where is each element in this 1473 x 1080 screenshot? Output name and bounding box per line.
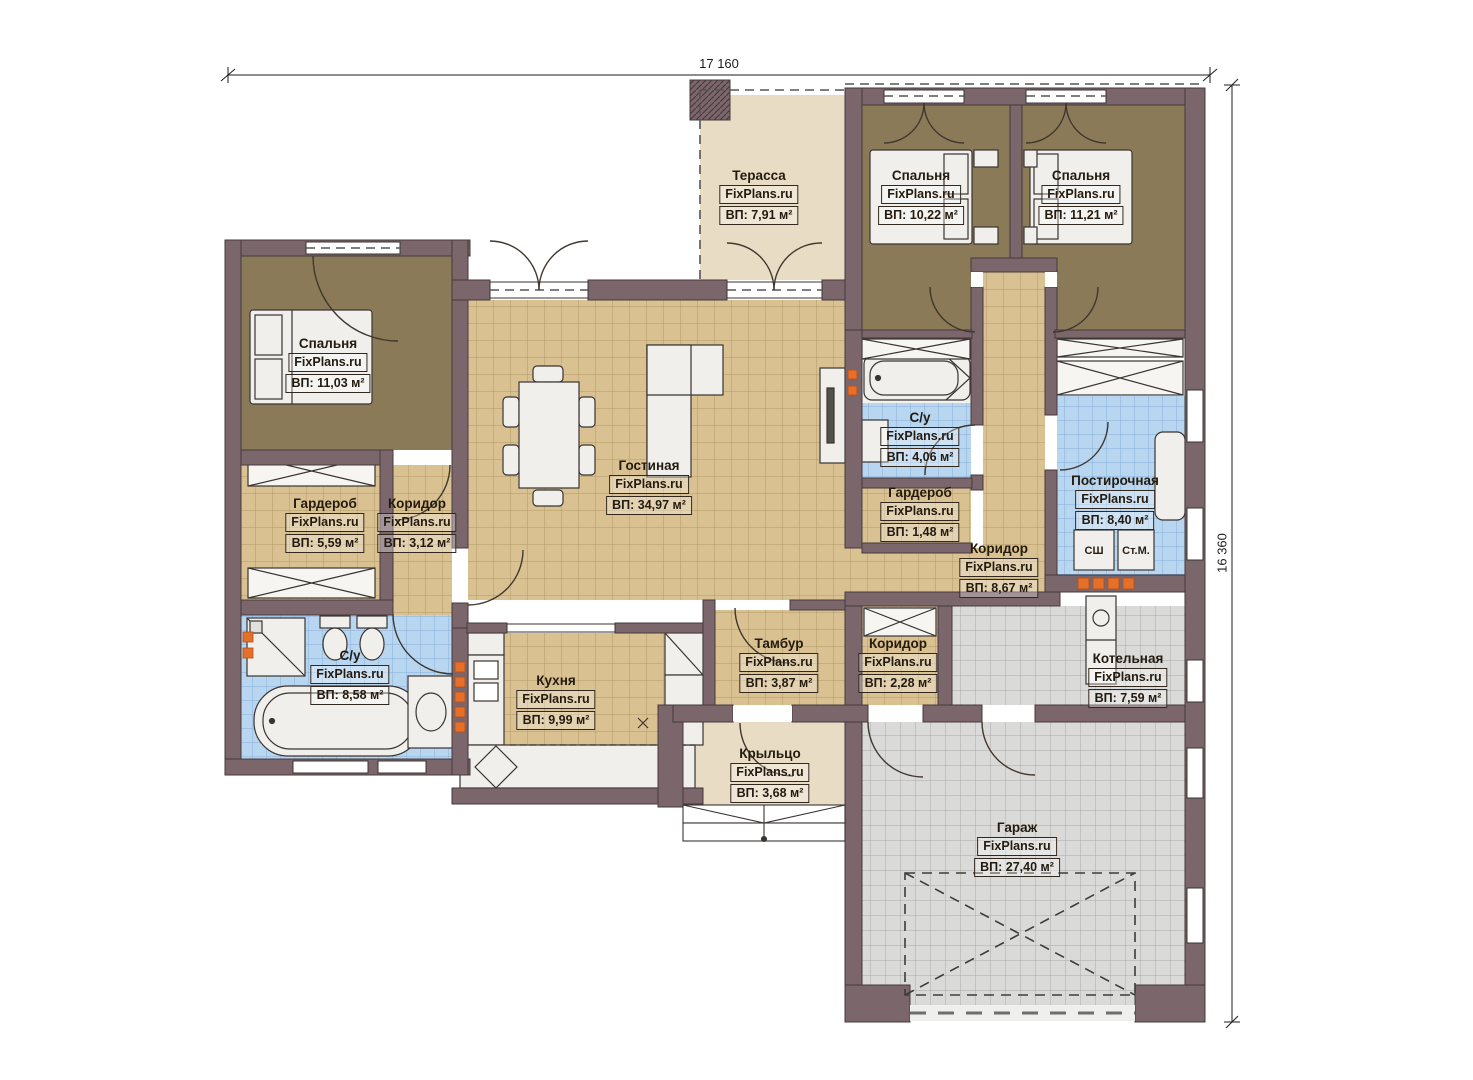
porch-steps: [683, 805, 845, 842]
room-area: ВП: 7,91 м²: [720, 206, 799, 225]
room-name: Гардероб: [285, 496, 364, 511]
garage-door: [910, 1005, 1135, 1021]
room-name: Тамбур: [739, 636, 818, 651]
room-name: Спальня: [285, 336, 370, 351]
room-area: ВП: 11,03 м²: [285, 374, 370, 393]
room-area: ВП: 8,40 м²: [1076, 511, 1155, 530]
room-area: ВП: 27,40 м²: [974, 858, 1060, 877]
room-area: ВП: 2,28 м²: [859, 674, 938, 693]
watermark-box: FixPlans.ru: [1041, 185, 1120, 204]
watermark-box: FixPlans.ru: [377, 513, 456, 532]
watermark-box: FixPlans.ru: [977, 837, 1056, 856]
room-area: ВП: 5,59 м²: [286, 534, 365, 553]
tv-cabinet: [820, 368, 845, 463]
room-label-laundry: Постирочная FixPlans.ru ВП: 8,40 м²: [1071, 473, 1159, 530]
room-name: Гараж: [974, 820, 1060, 835]
room-label-corridor-main: Коридор FixPlans.ru ВП: 8,67 м²: [959, 541, 1038, 598]
room-label-bathroom-big: С/у FixPlans.ru ВП: 8,58 м²: [310, 648, 389, 705]
room-name: С/у: [880, 410, 959, 425]
watermark-box: FixPlans.ru: [719, 185, 798, 204]
room-label-garage: Гараж FixPlans.ru ВП: 27,40 м²: [974, 820, 1060, 877]
floor-plan-drawing: [0, 0, 1473, 1080]
room-label-corridor-small: Коридор FixPlans.ru ВП: 2,28 м²: [858, 636, 937, 693]
room-label-corridor-left: Коридор FixPlans.ru ВП: 3,12 м²: [377, 496, 456, 553]
room-name: Постирочная: [1071, 473, 1159, 488]
room-area: ВП: 3,12 м²: [378, 534, 457, 553]
room-area: ВП: 10,22 м²: [878, 206, 964, 225]
room-name: Гостиная: [606, 458, 692, 473]
watermark-box: FixPlans.ru: [1088, 668, 1167, 687]
room-area: ВП: 8,67 м²: [960, 579, 1039, 598]
watermark-box: FixPlans.ru: [858, 653, 937, 672]
watermark-box: FixPlans.ru: [730, 763, 809, 782]
room-name: Спальня: [1038, 168, 1123, 183]
watermark-box: FixPlans.ru: [881, 185, 960, 204]
room-name: Коридор: [377, 496, 456, 511]
watermark-box: FixPlans.ru: [959, 558, 1038, 577]
room-label-vestibule: Тамбур FixPlans.ru ВП: 3,87 м²: [739, 636, 818, 693]
floor-plan-page: Терасса FixPlans.ru ВП: 7,91 м² Спальня …: [0, 0, 1473, 1080]
room-area: ВП: 8,58 м²: [311, 686, 390, 705]
room-name: Терасса: [719, 168, 798, 183]
drying-cabinet-label: СШ: [1085, 545, 1104, 557]
room-label-porch: Крыльцо FixPlans.ru ВП: 3,68 м²: [730, 746, 809, 803]
room-area: ВП: 3,87 м²: [740, 674, 819, 693]
room-name: Коридор: [858, 636, 937, 651]
room-name: Коридор: [959, 541, 1038, 556]
room-label-boiler-room: Котельная FixPlans.ru ВП: 7,59 м²: [1088, 651, 1167, 708]
room-name: Гардероб: [880, 485, 959, 500]
dimension-height: 16 360: [1215, 533, 1230, 573]
watermark-box: FixPlans.ru: [609, 475, 688, 494]
room-label-bedroom-2: Спальня FixPlans.ru ВП: 11,21 м²: [1038, 168, 1123, 225]
watermark-box: FixPlans.ru: [1075, 490, 1154, 509]
laundry-cabinet: [1155, 432, 1185, 520]
room-area: ВП: 34,97 м²: [606, 496, 692, 515]
room-area: ВП: 9,99 м²: [517, 711, 596, 730]
room-name: Крыльцо: [730, 746, 809, 761]
room-label-living-room: Гостиная FixPlans.ru ВП: 34,97 м²: [606, 458, 692, 515]
room-name: Котельная: [1088, 651, 1167, 666]
room-label-wardrobe-left: Гардероб FixPlans.ru ВП: 5,59 м²: [285, 496, 364, 553]
watermark-box: FixPlans.ru: [739, 653, 818, 672]
room-area: ВП: 7,59 м²: [1089, 689, 1168, 708]
shower: [247, 618, 305, 676]
room-label-kitchen: Кухня FixPlans.ru ВП: 9,99 м²: [516, 673, 595, 730]
dimension-width: 17 160: [699, 56, 739, 71]
room-label-bedroom-1: Спальня FixPlans.ru ВП: 10,22 м²: [878, 168, 964, 225]
room-area: ВП: 3,68 м²: [731, 784, 810, 803]
room-area: ВП: 11,21 м²: [1038, 206, 1123, 225]
watermark-box: FixPlans.ru: [880, 502, 959, 521]
room-area: ВП: 1,48 м²: [881, 523, 960, 542]
washing-machine-label: Ст.М.: [1122, 545, 1150, 557]
room-name: С/у: [310, 648, 389, 663]
room-area: ВП: 4,06 м²: [881, 448, 960, 467]
room-name: Кухня: [516, 673, 595, 688]
room-label-wardrobe-small: Гардероб FixPlans.ru ВП: 1,48 м²: [880, 485, 959, 542]
room-label-bedroom-3: Спальня FixPlans.ru ВП: 11,03 м²: [285, 336, 370, 393]
bathtub-small: [864, 356, 970, 400]
sink-big: [408, 676, 454, 748]
watermark-box: FixPlans.ru: [516, 690, 595, 709]
watermark-box: FixPlans.ru: [310, 665, 389, 684]
room-label-bathroom-small: С/у FixPlans.ru ВП: 4,06 м²: [880, 410, 959, 467]
watermark-box: FixPlans.ru: [285, 513, 364, 532]
watermark-box: FixPlans.ru: [880, 427, 959, 446]
room-label-terrace: Терасса FixPlans.ru ВП: 7,91 м²: [719, 168, 798, 225]
room-name: Спальня: [878, 168, 964, 183]
watermark-box: FixPlans.ru: [288, 353, 367, 372]
